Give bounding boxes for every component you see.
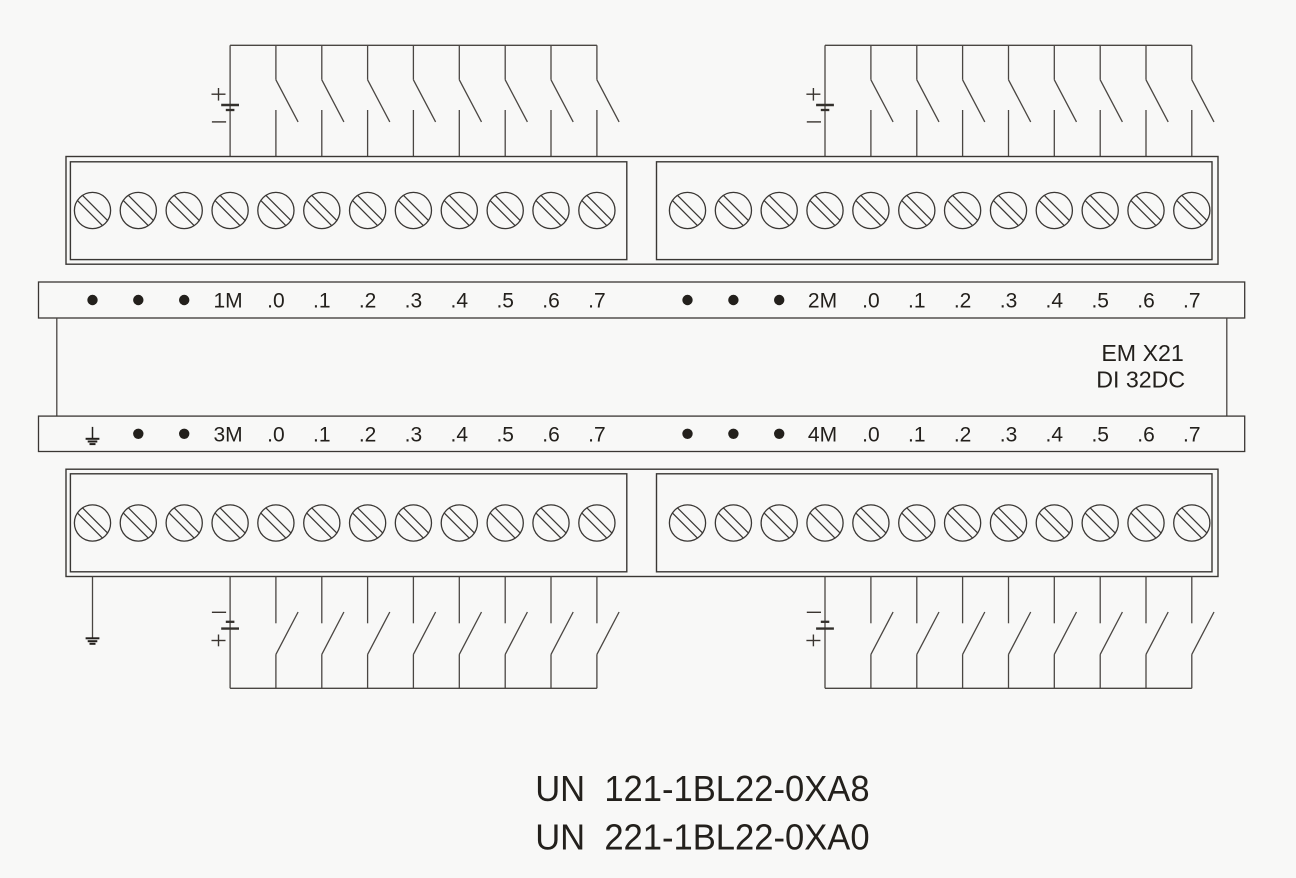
svg-text:.7: .7 — [1183, 424, 1201, 447]
svg-text:4M: 4M — [808, 424, 837, 447]
svg-text:.3: .3 — [405, 290, 423, 313]
svg-text:UN 221-1BL22-0XA0: UN 221-1BL22-0XA0 — [535, 817, 869, 858]
svg-text:.0: .0 — [267, 424, 285, 447]
svg-text:.5: .5 — [496, 424, 514, 447]
svg-text:.3: .3 — [405, 424, 423, 447]
svg-text:.0: .0 — [862, 424, 880, 447]
svg-text:.0: .0 — [267, 290, 285, 313]
svg-text:.5: .5 — [496, 290, 514, 313]
svg-text:.5: .5 — [1091, 290, 1109, 313]
svg-text:UN 121-1BL22-0XA8: UN 121-1BL22-0XA8 — [535, 768, 869, 809]
svg-text:.1: .1 — [313, 424, 331, 447]
svg-text:.3: .3 — [1000, 424, 1018, 447]
svg-text:.1: .1 — [908, 290, 926, 313]
svg-text:.2: .2 — [954, 290, 972, 313]
svg-text:.2: .2 — [359, 290, 377, 313]
svg-text:.6: .6 — [1137, 424, 1155, 447]
svg-text:1M: 1M — [214, 290, 243, 313]
svg-text:.6: .6 — [1137, 290, 1155, 313]
svg-text:.2: .2 — [954, 424, 972, 447]
svg-text:.4: .4 — [451, 290, 469, 313]
svg-text:2M: 2M — [808, 290, 837, 313]
svg-text:EM X21: EM X21 — [1101, 340, 1183, 366]
svg-text:.1: .1 — [313, 290, 331, 313]
svg-text:.4: .4 — [1046, 424, 1064, 447]
svg-text:DI 32DC: DI 32DC — [1096, 367, 1185, 393]
svg-text:.7: .7 — [588, 290, 606, 313]
svg-text:.2: .2 — [359, 424, 377, 447]
svg-text:.6: .6 — [542, 424, 560, 447]
svg-text:.7: .7 — [588, 424, 606, 447]
svg-text:.6: .6 — [542, 290, 560, 313]
svg-text:.4: .4 — [451, 424, 469, 447]
svg-text:3M: 3M — [214, 424, 243, 447]
svg-text:.5: .5 — [1091, 424, 1109, 447]
svg-text:.7: .7 — [1183, 290, 1201, 313]
svg-text:.0: .0 — [862, 290, 880, 313]
svg-text:.3: .3 — [1000, 290, 1018, 313]
svg-text:.4: .4 — [1046, 290, 1064, 313]
svg-text:.1: .1 — [908, 424, 926, 447]
